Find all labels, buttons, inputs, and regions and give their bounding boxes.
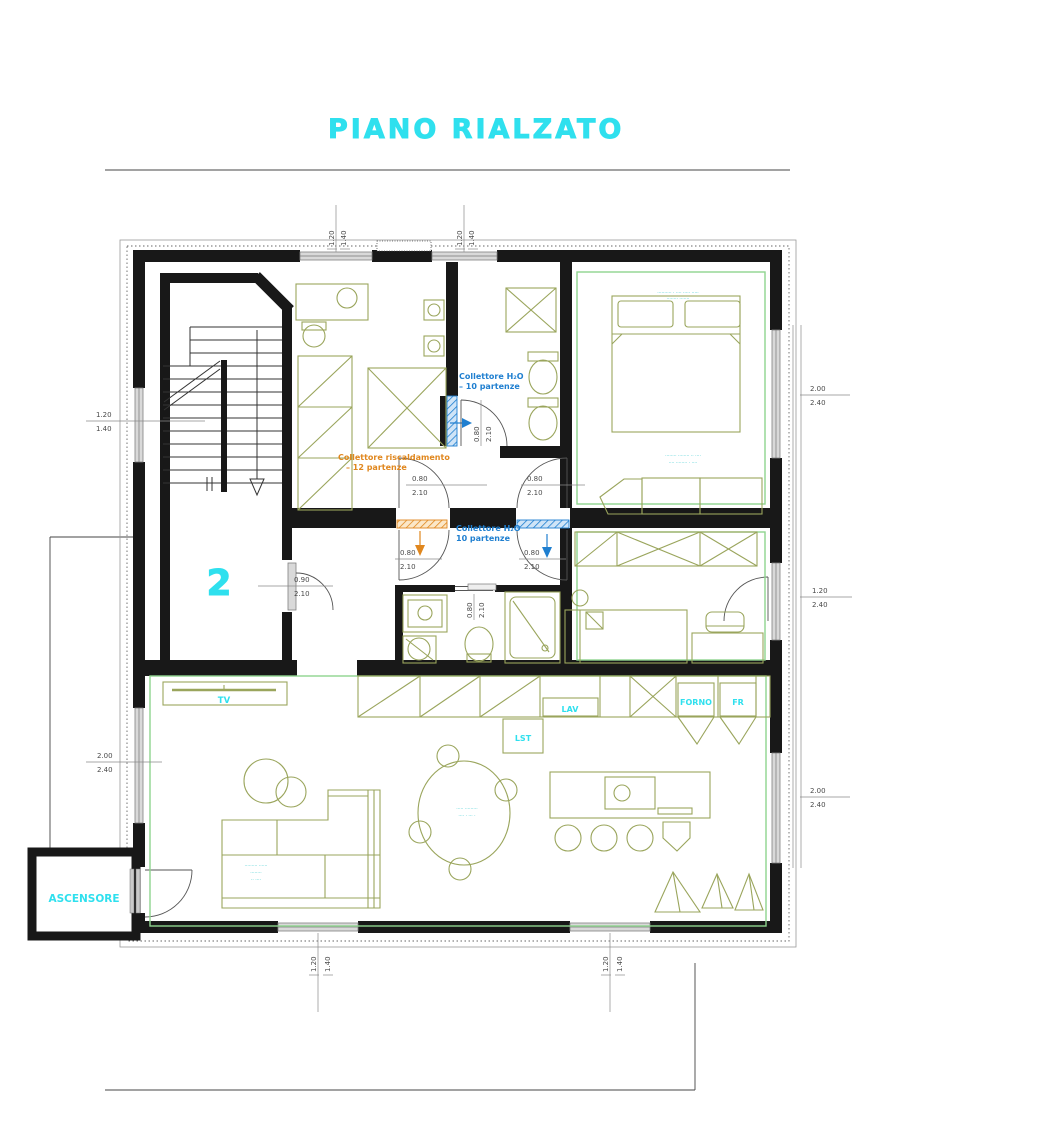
floor-plan-canvas: PIANO RIALZATO (0, 0, 1053, 1147)
dim-living-left-h: 2.40 (97, 766, 113, 774)
window-top-1 (300, 252, 372, 260)
dim-door-ul-w: 0.80 (412, 475, 428, 483)
dim-top-window1-w: 1.20 (328, 230, 336, 246)
dim-bedroom1-window-h: 2.40 (810, 399, 826, 407)
dim-bath2-door-h: 2.10 (478, 602, 486, 618)
furniture-annotation: ···· ········ · ···· (669, 461, 698, 466)
dim-bedroom1-window-w: 2.00 (810, 385, 826, 393)
furniture-bedroom2 (565, 532, 763, 663)
floor-plan-drawing: PIANO RIALZATO (0, 0, 1053, 1147)
window-living-left (135, 708, 143, 823)
furniture-annotation: ········ ········ ·· ···· (665, 454, 701, 459)
collettore-h2o-top-label-line1: Collettore H₂O (459, 372, 524, 381)
kitchen-sink-label: LAV (562, 705, 580, 714)
collettore-h2o-mid-label-line2: 10 partenze (456, 534, 511, 543)
furniture-kitchen: LAV LST FORNO FR (358, 676, 770, 851)
oven-label: FORNO (680, 698, 712, 707)
window-top-2 (432, 252, 497, 260)
window-bottom-1 (278, 923, 358, 931)
dim-stair-window-w: 1.20 (96, 411, 112, 419)
dim-door-lr-h: 2.10 (524, 563, 540, 571)
sliding-door-bath2 (455, 584, 496, 591)
dim-door-ur-w: 0.80 (527, 475, 543, 483)
collettore-arrow-blue-down (542, 534, 552, 558)
plan-title: PIANO RIALZATO (328, 114, 624, 145)
dim-bath2-door-w: 0.80 (466, 602, 474, 618)
door-entry-living (145, 870, 192, 917)
elevator: ASCENSORE (32, 852, 140, 936)
door-upper-right (517, 458, 567, 508)
furniture-annotation: ·· ···· (251, 878, 261, 883)
dim-bedroom2-door-h: 2.40 (812, 601, 828, 609)
dim-top-window2-h: 1.40 (468, 230, 476, 246)
dim-door-ll-w: 0.80 (400, 549, 416, 557)
staircase (163, 327, 282, 495)
window-living-right (772, 753, 780, 863)
dim-bath1-door-w: 0.80 (473, 426, 481, 442)
unit-number-label: 2 (206, 563, 231, 604)
dim-bedroom2-door-w: 1.20 (812, 587, 828, 595)
fridge-label: FR (732, 698, 744, 707)
collettore-h2o-mid-label-line1: Collettore H₂O (456, 524, 521, 533)
dim-entry-door-w: 0.90 (294, 576, 310, 584)
furniture-annotation: ·········· · ···· ····· ····· (657, 291, 698, 296)
dim-door-ll-h: 2.10 (400, 563, 416, 571)
dim-entry-door-h: 2.10 (294, 590, 310, 598)
furniture-bedroom1 (600, 296, 762, 514)
dim-bottom-window2-w: 1.20 (602, 956, 610, 972)
elevator-label: ASCENSORE (48, 893, 119, 905)
collettore-riscaldamento-label-line1: Collettore riscaldamento (338, 453, 450, 462)
stairs-down-arrow (250, 479, 264, 495)
dim-door-ul-h: 2.10 (412, 489, 428, 497)
window-stair (135, 388, 143, 462)
kitchen-island (550, 772, 710, 851)
dim-stair-window-h: 1.40 (96, 425, 112, 433)
collettore-h2o-top-cabinet (447, 396, 457, 446)
collettore-riscaldamento-cabinet (397, 520, 447, 528)
collettore-h2o-top-label-line2: – 10 partenze (459, 382, 520, 391)
french-door-bedroom2 (772, 563, 780, 640)
collettore-riscaldamento-label-line2: – 12 partenze (346, 463, 407, 472)
dim-bottom-window1-w: 1.20 (310, 956, 318, 972)
door-entry-unit2 (288, 563, 333, 610)
dim-living-left-w: 2.00 (97, 752, 113, 760)
furniture-annotation: ········ ······· (667, 297, 690, 302)
dim-bottom-window1-h: 1.40 (324, 956, 332, 972)
dim-top-window1-h: 1.40 (340, 230, 348, 246)
furniture-annotation: ········ (250, 871, 261, 876)
tv-label: TV (218, 696, 231, 706)
plants (655, 872, 763, 912)
furniture-annotation: ········· ······ (245, 864, 268, 869)
dim-door-lr-w: 0.80 (524, 549, 540, 557)
collettore-h2o-mid-cabinet (517, 520, 569, 528)
dim-door-ur-h: 2.10 (527, 489, 543, 497)
furniture-annotation: ···· · ··· · (458, 814, 475, 819)
room-labels: 2 (206, 563, 231, 604)
dim-bath1-door-h: 2.10 (485, 426, 493, 442)
dim-living-right-w: 2.00 (810, 787, 826, 795)
dim-top-window2-w: 1.20 (456, 230, 464, 246)
window-bedroom1 (772, 330, 780, 458)
window-bottom-2 (570, 923, 650, 931)
furniture-annotation: ····· ········· (456, 807, 477, 812)
dishwasher-label: LST (515, 734, 532, 743)
collettore-arrow-orange-down (415, 531, 425, 556)
dimension-annotations: 1.20 1.40 2.00 2.40 2.00 2.40 1.20 2.40 … (86, 205, 852, 1012)
dim-living-right-h: 2.40 (810, 801, 826, 809)
french-door-swing-bedroom2 (724, 577, 768, 621)
dim-bottom-window2-h: 1.40 (616, 956, 624, 972)
